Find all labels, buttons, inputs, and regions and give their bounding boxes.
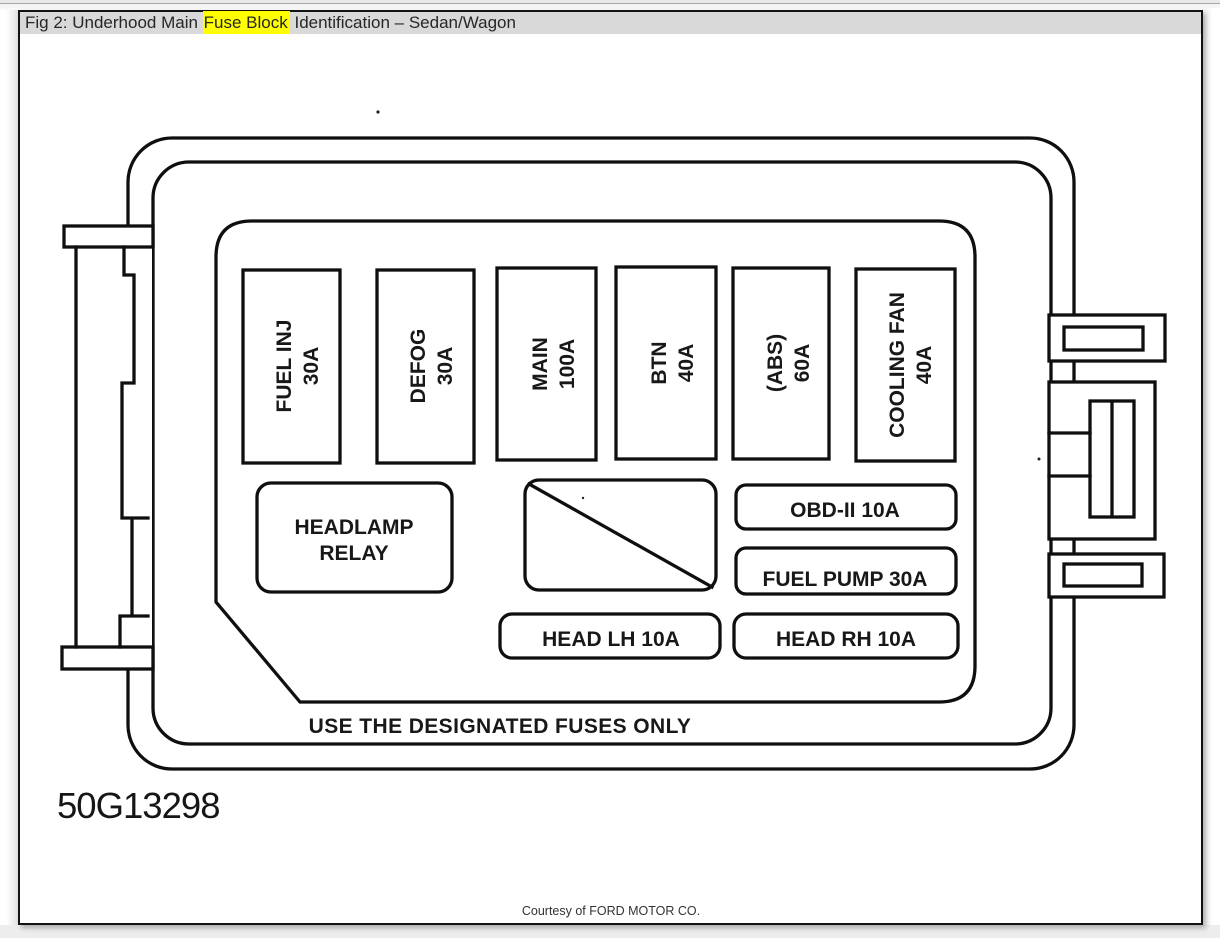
svg-text:30A: 30A — [300, 347, 323, 386]
svg-text:DEFOG: DEFOG — [407, 329, 430, 404]
svg-text:COOLING FAN: COOLING FAN — [886, 292, 909, 438]
svg-text:HEAD RH 10A: HEAD RH 10A — [776, 628, 916, 651]
svg-text:MAIN: MAIN — [529, 337, 552, 391]
svg-text:FUEL INJ: FUEL INJ — [273, 320, 296, 413]
svg-text:RELAY: RELAY — [319, 542, 388, 565]
svg-text:40A: 40A — [913, 346, 936, 385]
svg-text:50G13298: 50G13298 — [57, 785, 220, 826]
svg-text:HEAD LH 10A: HEAD LH 10A — [542, 628, 680, 651]
svg-text:60A: 60A — [791, 344, 814, 383]
svg-text:FUEL PUMP 30A: FUEL PUMP 30A — [763, 568, 928, 591]
svg-text:USE THE DESIGNATED FUSES ONLY: USE THE DESIGNATED FUSES ONLY — [309, 715, 692, 738]
svg-text:HEADLAMP: HEADLAMP — [295, 516, 414, 539]
svg-text:Courtesy of FORD MOTOR CO.: Courtesy of FORD MOTOR CO. — [522, 904, 700, 918]
svg-text:(ABS): (ABS) — [764, 334, 787, 392]
svg-text:BTN: BTN — [648, 341, 671, 384]
svg-text:OBD-II 10A: OBD-II 10A — [790, 499, 900, 522]
svg-text:40A: 40A — [675, 344, 698, 383]
svg-text:30A: 30A — [434, 347, 457, 386]
svg-text:100A: 100A — [556, 339, 579, 389]
